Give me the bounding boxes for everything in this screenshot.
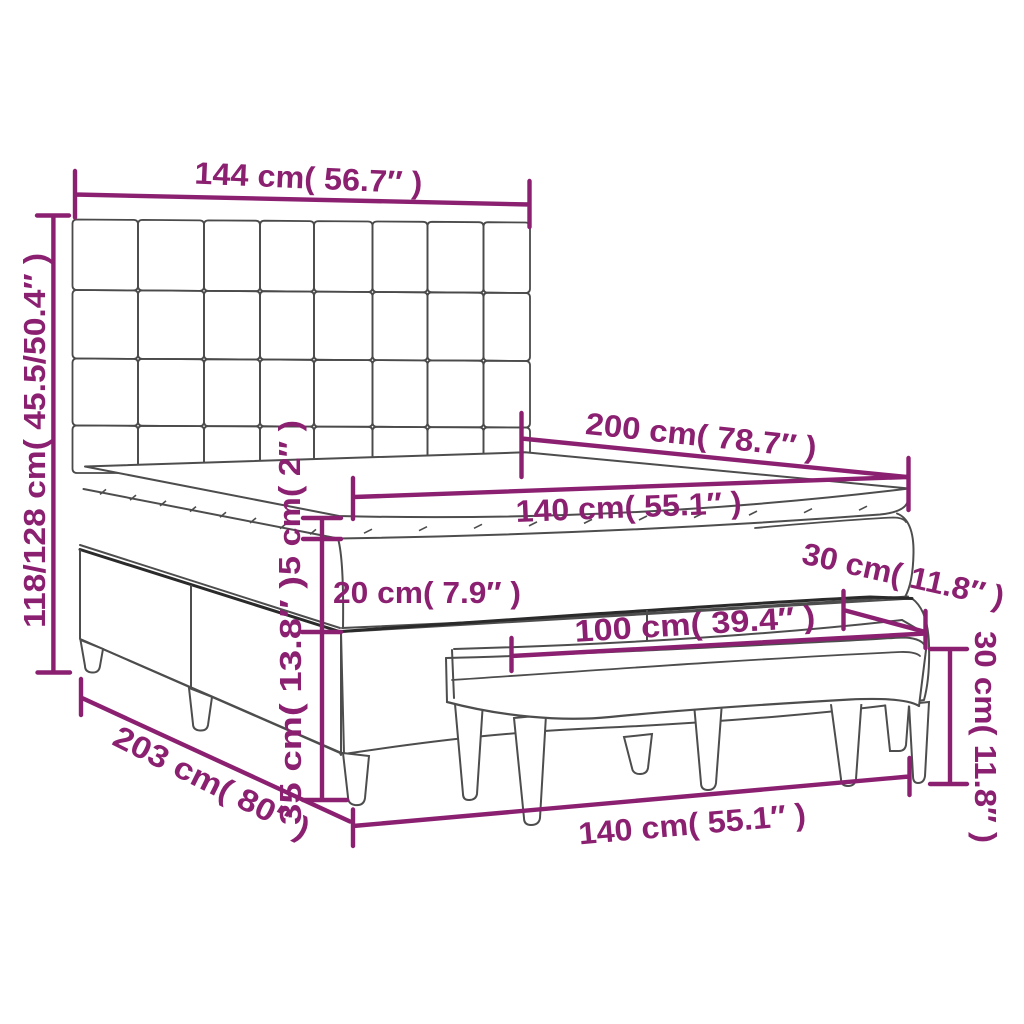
svg-text:30 cm( 11.8″ ): 30 cm( 11.8″ )	[968, 631, 1003, 843]
svg-text:20 cm( 7.9″ ): 20 cm( 7.9″ )	[333, 575, 521, 610]
svg-text:5 cm( 2″ ): 5 cm( 2″ )	[272, 420, 307, 575]
svg-text:35 cm( 13.8″ ): 35 cm( 13.8″ )	[273, 576, 308, 825]
svg-text:118/128 cm( 45.5/50.4″ ): 118/128 cm( 45.5/50.4″ )	[17, 253, 52, 628]
